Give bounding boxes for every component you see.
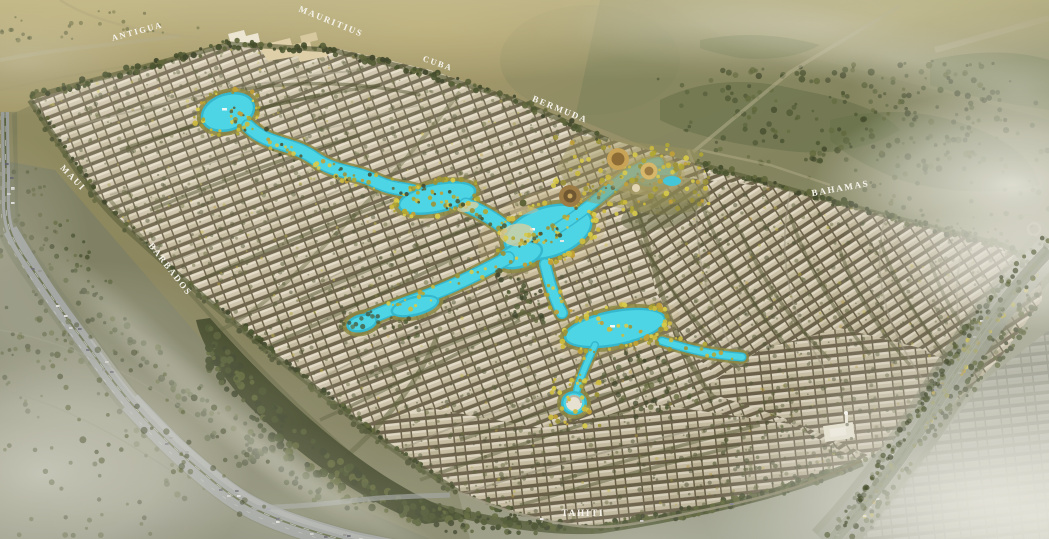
svg-text:TAHITI: TAHITI bbox=[562, 508, 605, 518]
